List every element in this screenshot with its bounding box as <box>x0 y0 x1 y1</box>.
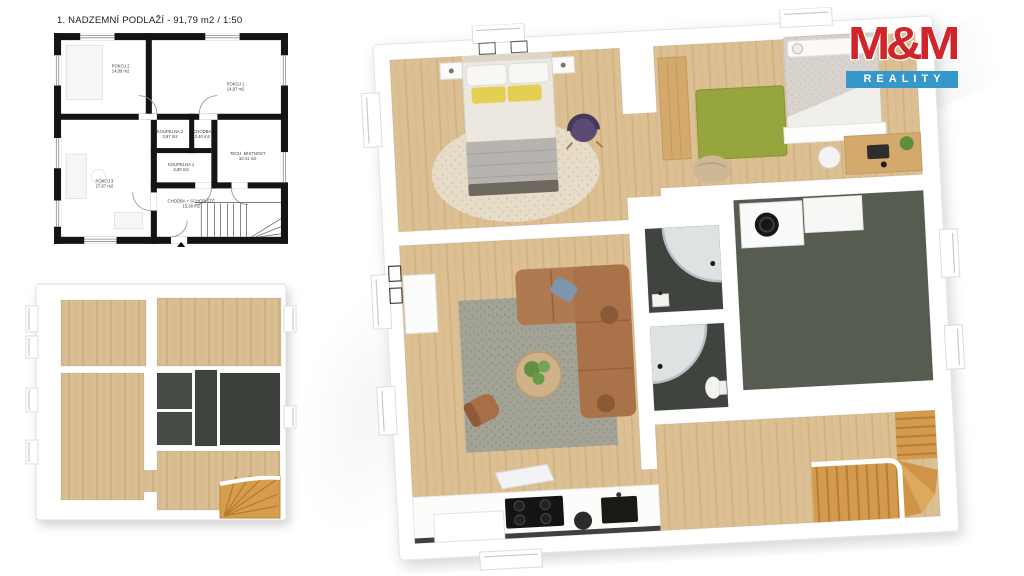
sideboard <box>403 274 438 334</box>
room-area: 2,90 m2 <box>173 167 189 172</box>
room-area: 10,41 m2 <box>239 156 257 161</box>
logo-reality-bar: REALITY <box>846 71 958 88</box>
logo-reality-text: REALITY <box>858 71 945 88</box>
logo-mm: M&M <box>846 20 958 66</box>
room-area: 2,40 m2 <box>195 134 211 139</box>
mm-reality-logo: M&M REALITY <box>846 20 958 88</box>
picture-frame <box>511 41 528 53</box>
room-floor-wood <box>157 298 281 366</box>
staircase-3d-small <box>220 476 280 518</box>
yellow-pillow <box>507 84 542 102</box>
yellow-pillow <box>471 86 506 104</box>
room-area: 15,38 m2 <box>182 204 200 209</box>
room-area: 14,09 m2 <box>112 68 130 73</box>
green-rug <box>696 86 788 161</box>
room-floor-dark <box>157 412 192 445</box>
room-area: 3,97 m2 <box>162 134 178 139</box>
floor-plan-2d: POKOJ 2 14,09 m2 POKOJ 1 14,97 m2 KOUPEL… <box>54 33 288 251</box>
picture-frame <box>390 288 403 304</box>
room-floor-dark <box>220 373 280 445</box>
room-floor-wood <box>61 300 146 366</box>
wardrobe <box>658 57 691 160</box>
picture-frame <box>388 266 401 282</box>
floor-plan-3d-small <box>24 270 314 542</box>
logo-mm-text: M&M <box>848 20 958 66</box>
toilet-tank <box>719 381 727 394</box>
room-area: 27,67 m2 <box>96 183 114 188</box>
picture-frame <box>479 43 496 55</box>
hall-floor <box>623 112 661 198</box>
room-area: 14,97 m2 <box>227 87 245 92</box>
desk-chair <box>818 146 841 169</box>
door-opening <box>142 470 159 492</box>
staircase-2d <box>195 203 281 237</box>
kitchen-sink <box>601 496 638 524</box>
furniture-outlines <box>66 45 143 229</box>
sink <box>652 294 669 307</box>
double-bed <box>462 58 559 197</box>
laptop <box>867 144 890 159</box>
room-floor-wood <box>61 373 144 500</box>
plan-title: 1. NADZEMNÍ PODLAŽÍ - 91,79 m2 / 1:50 <box>57 15 242 26</box>
cabinet <box>803 196 863 233</box>
cooktop <box>505 496 564 529</box>
room-floor-dark <box>195 370 217 446</box>
room-floor-dark <box>157 373 192 409</box>
kitchen-island <box>434 511 505 543</box>
